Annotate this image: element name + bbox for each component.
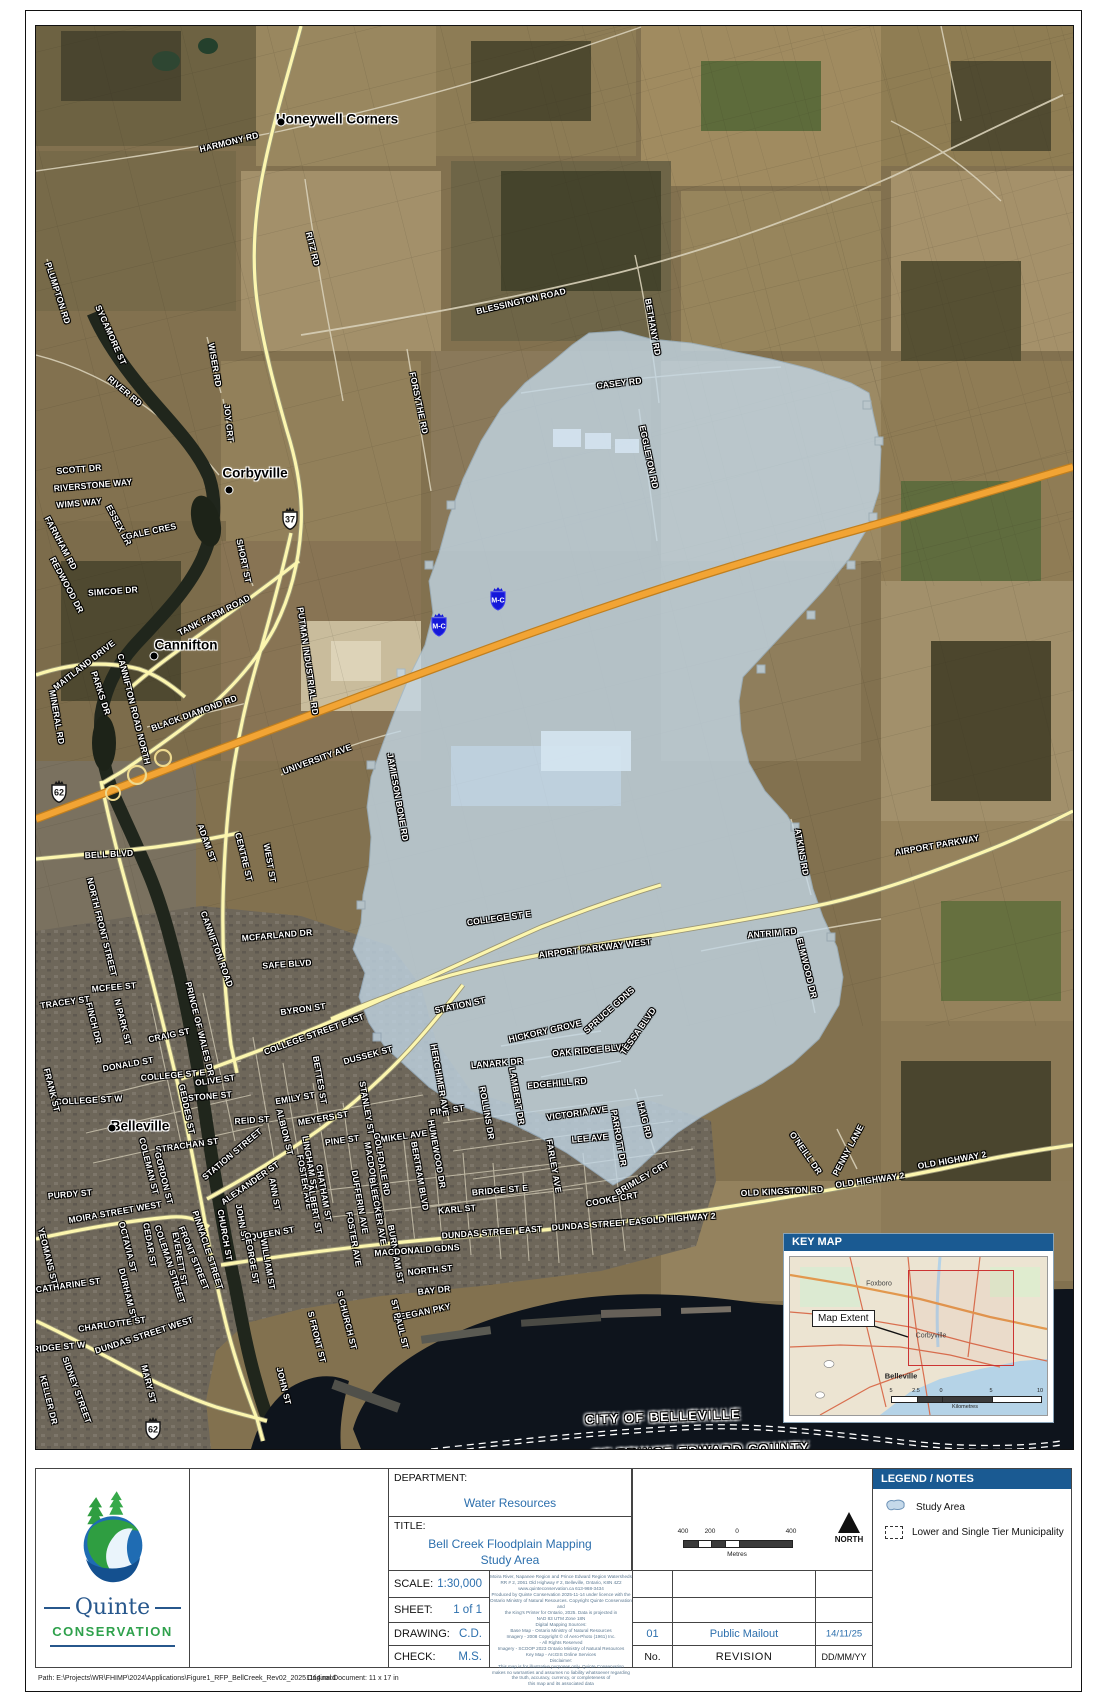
scale-value: 1:30,000: [437, 1578, 482, 1590]
source-notes-text: Moira River, Napanee Region and Prince E…: [490, 1571, 632, 1687]
revision-empty-cell: [815, 1570, 873, 1598]
map-document-page: HARMONY RDBLESSINGTON ROADBETHANY RDRITZ…: [0, 0, 1100, 1700]
map-extent-label: Map Extent: [812, 1310, 875, 1327]
drawing-label: DRAWING:: [394, 1628, 450, 1640]
keymap-town-belleville: Belleville: [885, 1372, 918, 1381]
document-size: Original Document: 11 x 17 in: [307, 1675, 399, 1682]
logo-cell: Quinte CONSERVATION: [35, 1468, 190, 1668]
revision-date-header-cell: DD/MM/YY: [815, 1645, 873, 1668]
scalebar-cell: [632, 1468, 873, 1571]
revision-empty-cell: [672, 1570, 816, 1598]
department-cell: DEPARTMENT: Water Resources: [388, 1468, 632, 1517]
revision-description: Public Mailout: [673, 1628, 815, 1640]
main-map: HARMONY RDBLESSINGTON ROADBETHANY RDRITZ…: [35, 25, 1074, 1450]
municipality-boundary-icon: [885, 1526, 903, 1539]
quinte-conservation-logo: [58, 1487, 168, 1607]
revision-empty-cell: [815, 1597, 873, 1623]
revision-empty-cell: [632, 1570, 673, 1598]
scale-label: SCALE:: [394, 1578, 433, 1590]
aerial-imagery: HARMONY RDBLESSINGTON ROADBETHANY RDRITZ…: [35, 25, 1074, 1450]
legend-item-lower-and-single-tier-municipality: Lower and Single Tier Municipality: [885, 1526, 1071, 1539]
north-arrow-icon: [838, 1512, 860, 1533]
map-title-line2: Study Area: [389, 1553, 631, 1567]
sheet-label: SHEET:: [394, 1604, 433, 1616]
keymap-town-corbyville: Corbyville: [916, 1333, 947, 1340]
revision-no-cell: 01: [632, 1622, 673, 1646]
revision-header: REVISION: [673, 1651, 815, 1663]
check-cell: CHECK: M.S.: [388, 1645, 490, 1668]
legend-item-label: Lower and Single Tier Municipality: [912, 1527, 1064, 1538]
revision-no-header: No.: [633, 1651, 672, 1663]
key-map-body: Map Extent FoxboroCorbyvilleBelleville 5…: [789, 1256, 1048, 1416]
keymap-scale-tick: 5: [989, 1388, 992, 1394]
logo-subname: CONSERVATION: [36, 1624, 189, 1639]
key-map: KEY MAP: [784, 1234, 1053, 1422]
legend-item-study-area: Study Area: [885, 1498, 1071, 1517]
legend-items: Study AreaLower and Single Tier Municipa…: [873, 1498, 1071, 1539]
sheet-value: 1 of 1: [453, 1604, 482, 1616]
legend-item-label: Study Area: [916, 1502, 965, 1513]
revision-header-cell: REVISION: [672, 1645, 816, 1668]
key-map-scale-unit: Kilometres: [952, 1404, 978, 1410]
scalebar-unit: Metres: [727, 1551, 747, 1558]
check-value: M.S.: [458, 1651, 482, 1663]
notes-cell: Moira River, Napanee Region and Prince E…: [489, 1570, 633, 1668]
revision-date-cell: 14/11/25: [815, 1622, 873, 1646]
north-label: NORTH: [835, 1535, 863, 1544]
document-path: Path: E:\Projects\WR\FHIMP\2024\Applicat…: [38, 1675, 336, 1682]
logo-rule: [50, 1645, 175, 1647]
keymap-scale-tick: 2.5: [912, 1388, 920, 1394]
revision-number: 01: [633, 1628, 672, 1640]
revision-date-header: DD/MM/YY: [816, 1652, 872, 1662]
sheet-cell: SHEET: 1 of 1: [388, 1597, 490, 1623]
scale-cell: SCALE: 1:30,000: [388, 1570, 490, 1598]
key-map-title: KEY MAP: [784, 1234, 1053, 1251]
revision-empty-cell: [632, 1597, 673, 1623]
title-block-spacer-cell: [189, 1468, 389, 1668]
title-label: TITLE:: [394, 1520, 426, 1532]
study-area-icon: [885, 1498, 907, 1517]
metres-scalebar: [683, 1540, 793, 1548]
keymap-scale-tick: 10: [1037, 1388, 1043, 1394]
legend-box: LEGEND / NOTES Study AreaLower and Singl…: [872, 1468, 1072, 1668]
logo-name: Quinte: [36, 1595, 189, 1620]
legend-title: LEGEND / NOTES: [873, 1469, 1071, 1489]
revision-empty-cell: [672, 1597, 816, 1623]
key-map-scalebar: [891, 1396, 1042, 1403]
map-title-line1: Bell Creek Floodplain Mapping: [389, 1537, 631, 1551]
revision-desc-cell: Public Mailout: [672, 1622, 816, 1646]
check-label: CHECK:: [394, 1651, 436, 1663]
department-label: DEPARTMENT:: [394, 1472, 467, 1484]
scalebar-tick: 200: [705, 1528, 716, 1535]
revision-no-header-cell: No.: [632, 1645, 673, 1668]
map-extent-rectangle: [908, 1270, 1014, 1366]
title-cell: TITLE: Bell Creek Floodplain Mapping Stu…: [388, 1516, 632, 1571]
drawing-value: C.D.: [459, 1628, 482, 1640]
drawing-cell: DRAWING: C.D.: [388, 1622, 490, 1646]
keymap-town-foxboro: Foxboro: [866, 1281, 892, 1288]
keymap-scale-tick: 5: [889, 1388, 892, 1394]
scalebar-tick: 0: [735, 1528, 739, 1535]
scalebar-tick: 400: [786, 1528, 797, 1535]
keymap-scale-tick: 0: [939, 1388, 942, 1394]
revision-date: 14/11/25: [816, 1629, 872, 1640]
scalebar-tick: 400: [678, 1528, 689, 1535]
department-value: Water Resources: [389, 1496, 631, 1510]
